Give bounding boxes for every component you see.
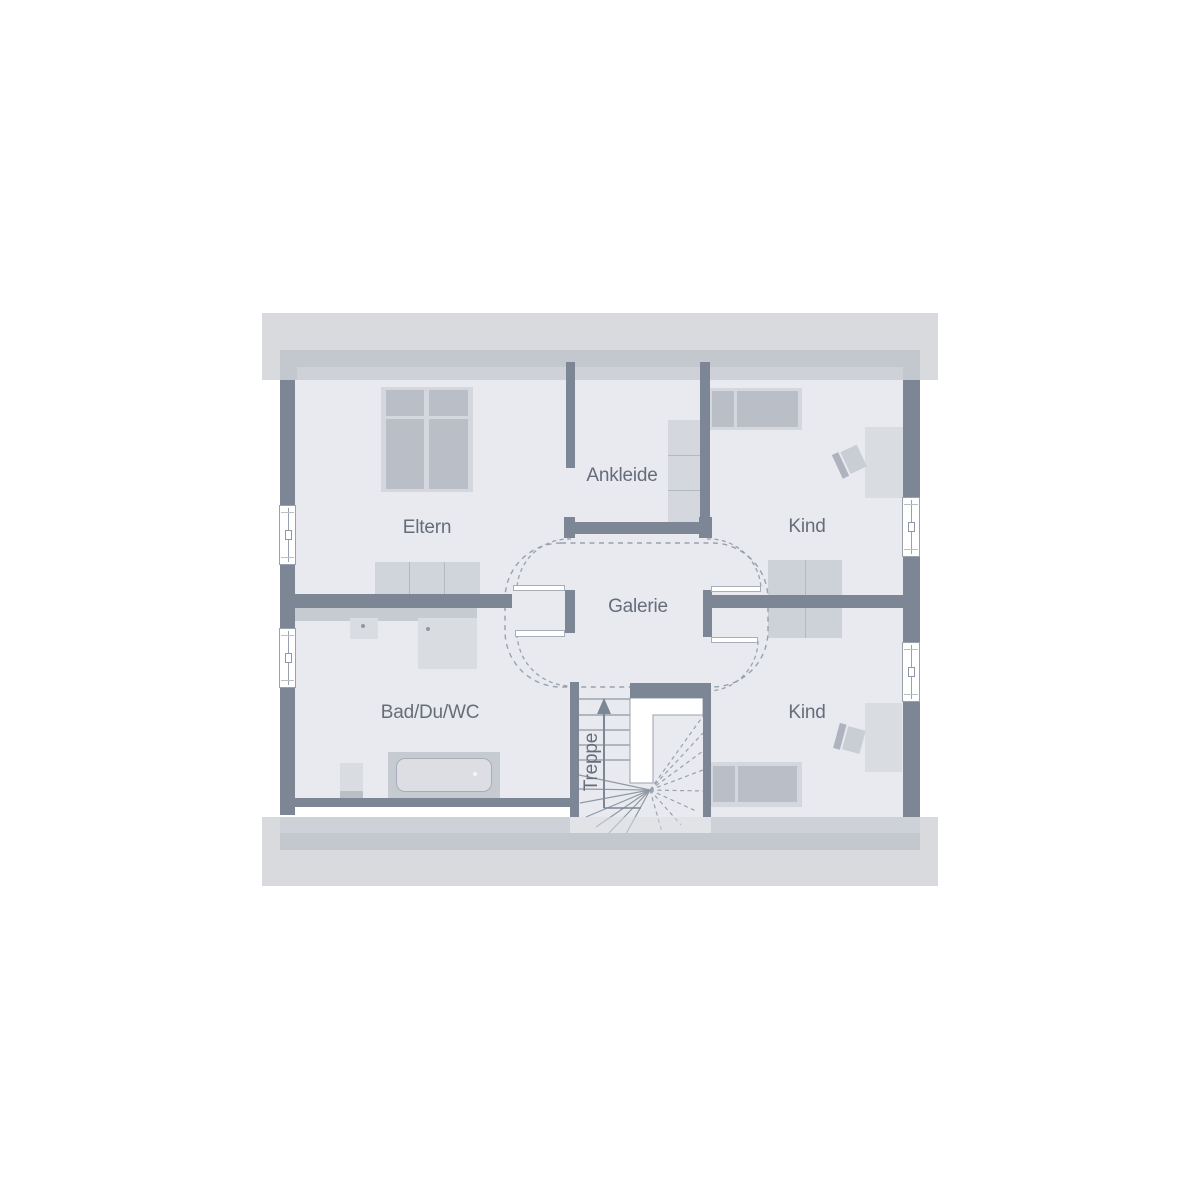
floor-plan-canvas: Eltern Ankleide Kind Galerie Bad/Du/WC K… — [0, 0, 1200, 1200]
wardrobe — [668, 420, 703, 525]
wardrobe-shelf — [668, 490, 703, 491]
door-leaf-bad — [515, 630, 565, 637]
roof-plate-bottom — [280, 817, 570, 833]
door-leaf-kind-top — [711, 586, 761, 592]
roof-plate-top — [297, 367, 903, 380]
dresser — [768, 560, 842, 597]
roof-overhang-top-right-tab — [920, 350, 938, 380]
window-frame-tick — [904, 504, 918, 505]
bathtub-drain — [473, 772, 477, 776]
roof-overhang-bottom-right-tab — [920, 817, 938, 850]
roof-overhang-top — [262, 313, 938, 350]
window-frame-tick — [904, 649, 918, 650]
bed-pillow — [386, 390, 424, 416]
dresser-divider — [805, 608, 806, 638]
window-frame-tick — [281, 557, 294, 558]
bed-pillow — [713, 766, 735, 802]
dresser-divider — [805, 560, 806, 597]
room-label-treppe: Treppe — [581, 733, 603, 791]
window-frame-tick — [904, 694, 918, 695]
stairwell-wall-right — [703, 683, 711, 817]
stairwell-wall-left — [570, 682, 579, 817]
roof-plate-bottom — [711, 817, 920, 833]
galerie-jamb-left — [565, 590, 575, 633]
double-bed — [381, 387, 473, 492]
window-handle — [908, 667, 915, 677]
window — [902, 642, 920, 702]
bed-mattress — [737, 391, 798, 427]
washbasin-drain — [361, 624, 365, 628]
roof-overhang-bottom — [262, 850, 938, 886]
room-label-kind-top: Kind — [788, 516, 825, 538]
bed-mattress — [429, 419, 468, 489]
roof-overhang-top-left-tab — [262, 350, 280, 380]
roof-overhang-bottom-left-tab — [262, 817, 280, 850]
single-bed — [707, 388, 802, 430]
bed-mattress — [738, 766, 797, 802]
roof-fascia-bottom — [280, 833, 920, 850]
bed-pillow — [429, 390, 468, 416]
wall-eltern-bad — [295, 594, 512, 608]
wall-ankleide-bottom — [567, 522, 711, 534]
window-handle — [285, 530, 292, 540]
wall-eltern-ankleide — [566, 362, 575, 468]
sideboard-divider — [409, 562, 410, 594]
door-leaf-eltern — [513, 585, 565, 591]
galerie-jamb-right — [703, 590, 712, 637]
window — [279, 505, 296, 565]
window-frame-tick — [281, 680, 294, 681]
bed-pillow — [712, 391, 734, 427]
wall-kind-kind — [711, 595, 903, 608]
eaves-gap — [295, 807, 570, 817]
shower — [418, 618, 477, 669]
bathtub-basin — [396, 758, 492, 792]
door-leaf-kind-bottom — [711, 637, 758, 643]
stairwell-wall-top — [630, 683, 711, 698]
bathtub — [388, 752, 500, 798]
window — [902, 497, 920, 557]
sideboard — [375, 562, 480, 594]
room-label-bad: Bad/Du/WC — [381, 702, 480, 724]
room-label-kind-bottom: Kind — [788, 702, 825, 724]
room-label-galerie: Galerie — [608, 596, 668, 618]
wall-ankleide-kind — [700, 362, 710, 533]
door-jamb — [699, 517, 712, 538]
window-frame-tick — [904, 549, 918, 550]
wardrobe-shelf — [668, 455, 703, 456]
window-handle — [908, 522, 915, 532]
bed-mattress — [386, 419, 424, 489]
single-bed — [708, 762, 802, 807]
window-frame-tick — [281, 512, 294, 513]
window-handle — [285, 653, 292, 663]
window — [279, 628, 296, 688]
dresser — [768, 608, 842, 638]
window-frame-tick — [281, 635, 294, 636]
sideboard-divider — [444, 562, 445, 594]
exterior-wall-left — [280, 380, 295, 815]
room-label-ankleide: Ankleide — [586, 465, 657, 487]
shower-drain — [426, 627, 430, 631]
desk — [865, 427, 903, 498]
desk — [865, 703, 902, 772]
roof-plate-bottom-stair — [570, 817, 711, 833]
door-jamb — [564, 517, 575, 538]
room-label-eltern: Eltern — [403, 517, 451, 539]
exterior-wall-right — [903, 380, 920, 817]
wc-toilet — [340, 763, 363, 791]
wall-bad-bottom — [281, 798, 570, 807]
washbasin — [350, 618, 378, 639]
